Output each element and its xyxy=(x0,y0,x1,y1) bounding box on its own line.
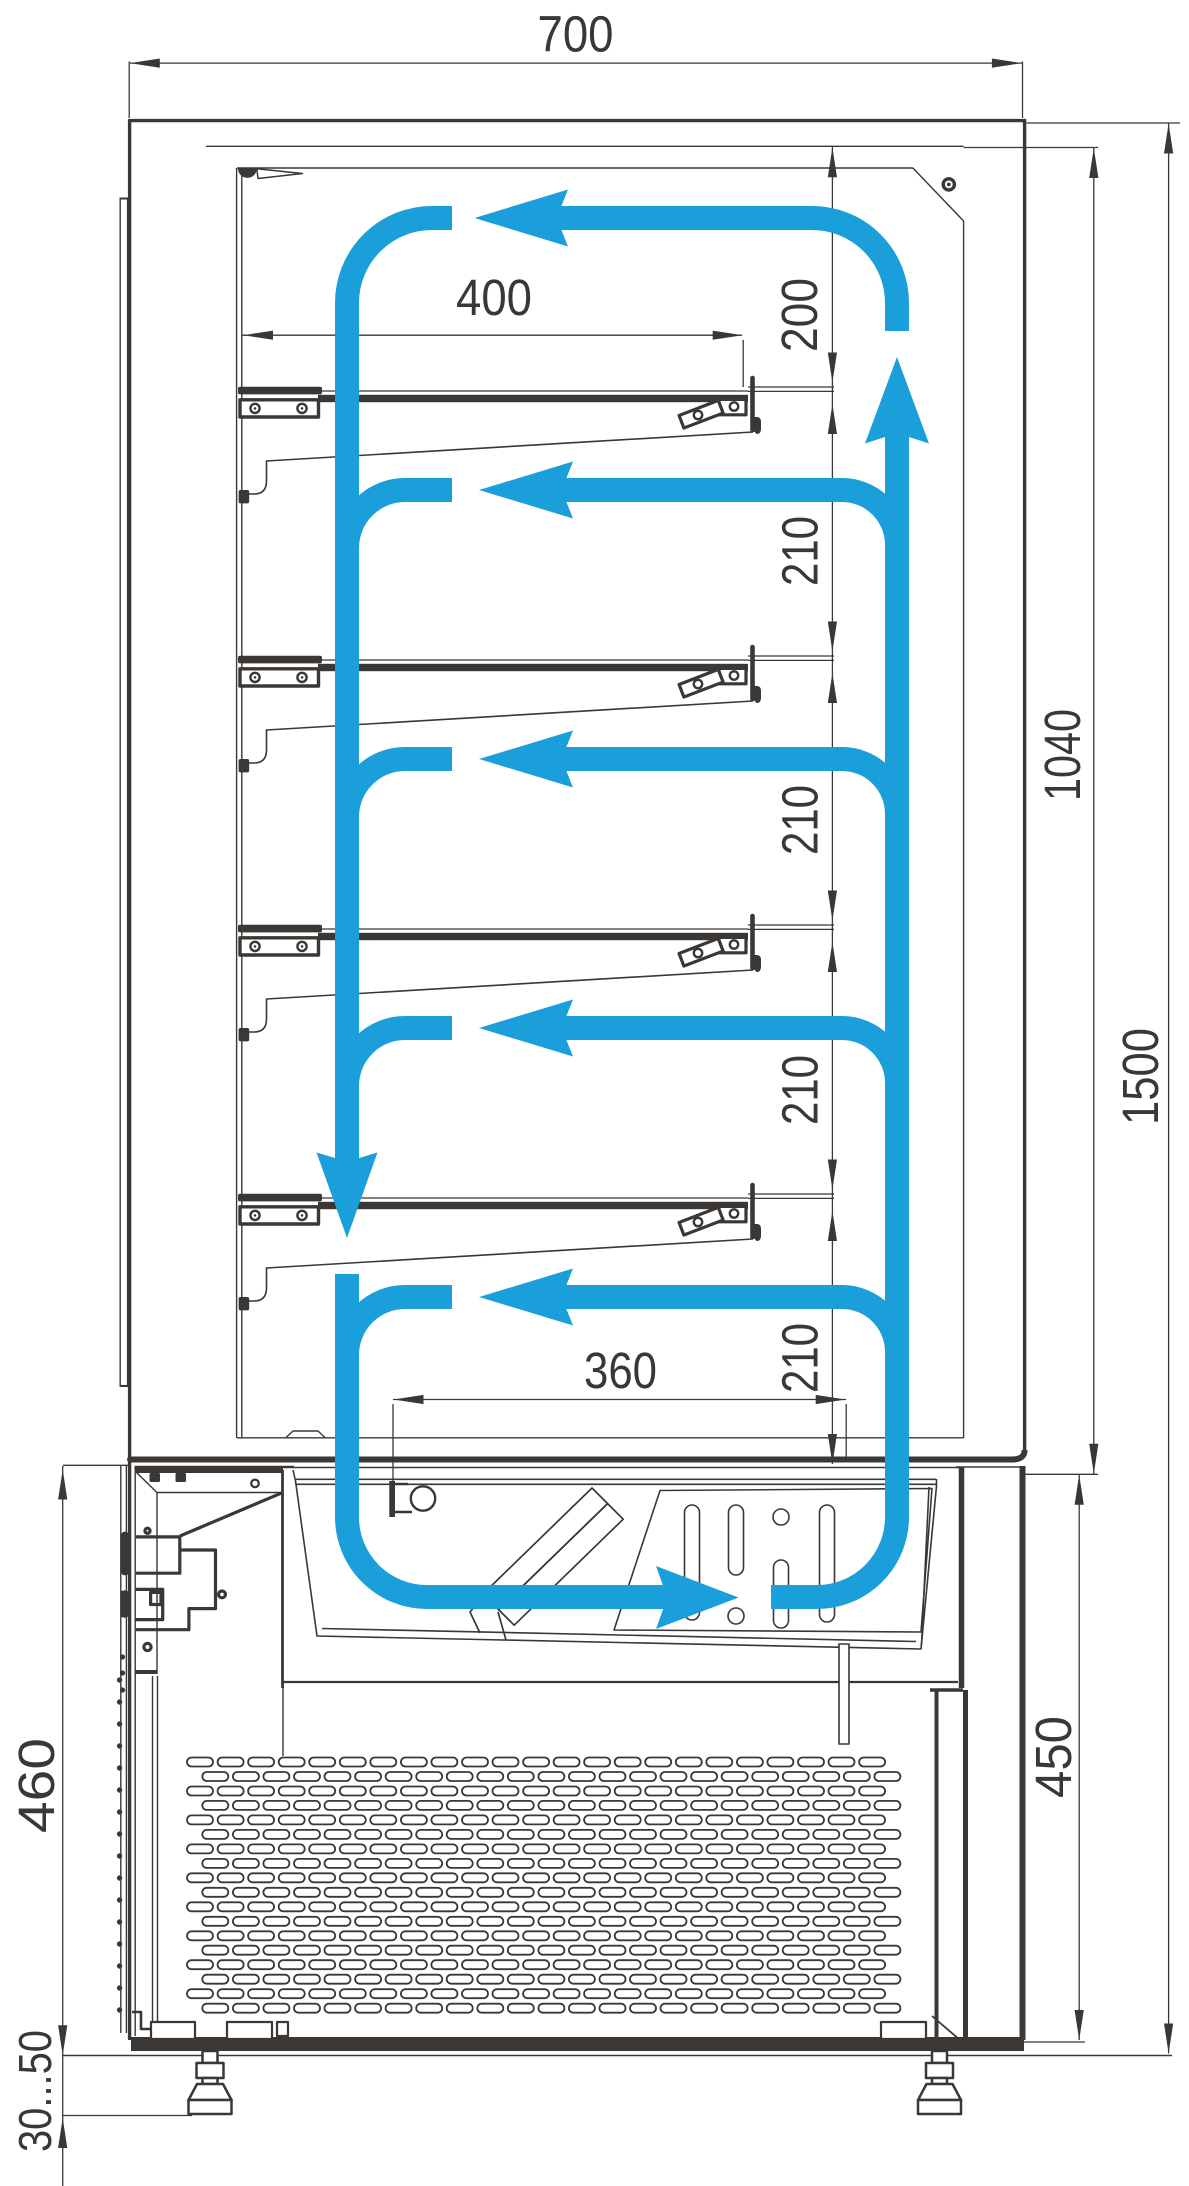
svg-text:360: 360 xyxy=(584,1342,657,1399)
svg-text:700: 700 xyxy=(538,5,614,62)
svg-text:1040: 1040 xyxy=(1034,709,1091,801)
svg-text:450: 450 xyxy=(1025,1716,1082,1798)
svg-text:30...50: 30...50 xyxy=(9,2030,61,2152)
svg-text:210: 210 xyxy=(772,785,829,855)
svg-text:210: 210 xyxy=(772,1055,829,1125)
svg-text:400: 400 xyxy=(456,269,532,326)
svg-text:1500: 1500 xyxy=(1112,1028,1169,1125)
svg-text:210: 210 xyxy=(772,516,829,586)
svg-text:200: 200 xyxy=(771,278,828,352)
svg-text:210: 210 xyxy=(772,1323,829,1393)
svg-text:460: 460 xyxy=(8,1738,65,1833)
